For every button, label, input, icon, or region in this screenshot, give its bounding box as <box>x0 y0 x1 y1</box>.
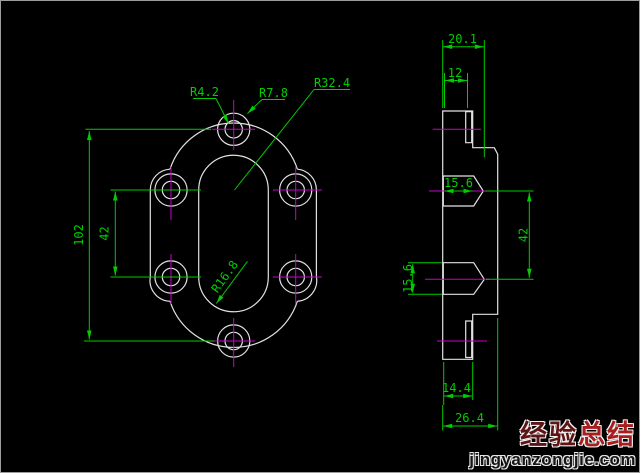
dim-42-side-label: 42 <box>517 228 531 242</box>
dim-12-label: 12 <box>448 66 462 80</box>
dim-14-4-label: 14.4 <box>442 381 471 395</box>
dim-102-label: 102 <box>72 224 86 246</box>
cad-drawing: 102 42 R4.2 R7.8 R32.4 <box>1 1 640 473</box>
watermark-site-url: jingyanzongjie.com <box>469 451 636 468</box>
watermark-brand-part1: 经验 <box>520 420 578 450</box>
watermark-brand: 经验总结 <box>469 422 636 449</box>
dim-42-label: 42 <box>98 226 112 240</box>
dim-15-6-depth-label: 15.6 <box>444 176 473 190</box>
label-r32-4: R32.4 <box>314 76 350 90</box>
watermark-brand-part2: 总结 <box>578 420 636 450</box>
dim-20-1-label: 20.1 <box>448 32 477 46</box>
label-r7-8: R7.8 <box>259 86 288 100</box>
label-r4-2: R4.2 <box>190 85 219 99</box>
watermark: 经验总结 jingyanzongjie.com <box>469 422 636 468</box>
cad-drawing-canvas: 102 42 R4.2 R7.8 R32.4 <box>0 0 640 473</box>
dim-15-6-dia-label: 15.6 <box>401 264 415 293</box>
